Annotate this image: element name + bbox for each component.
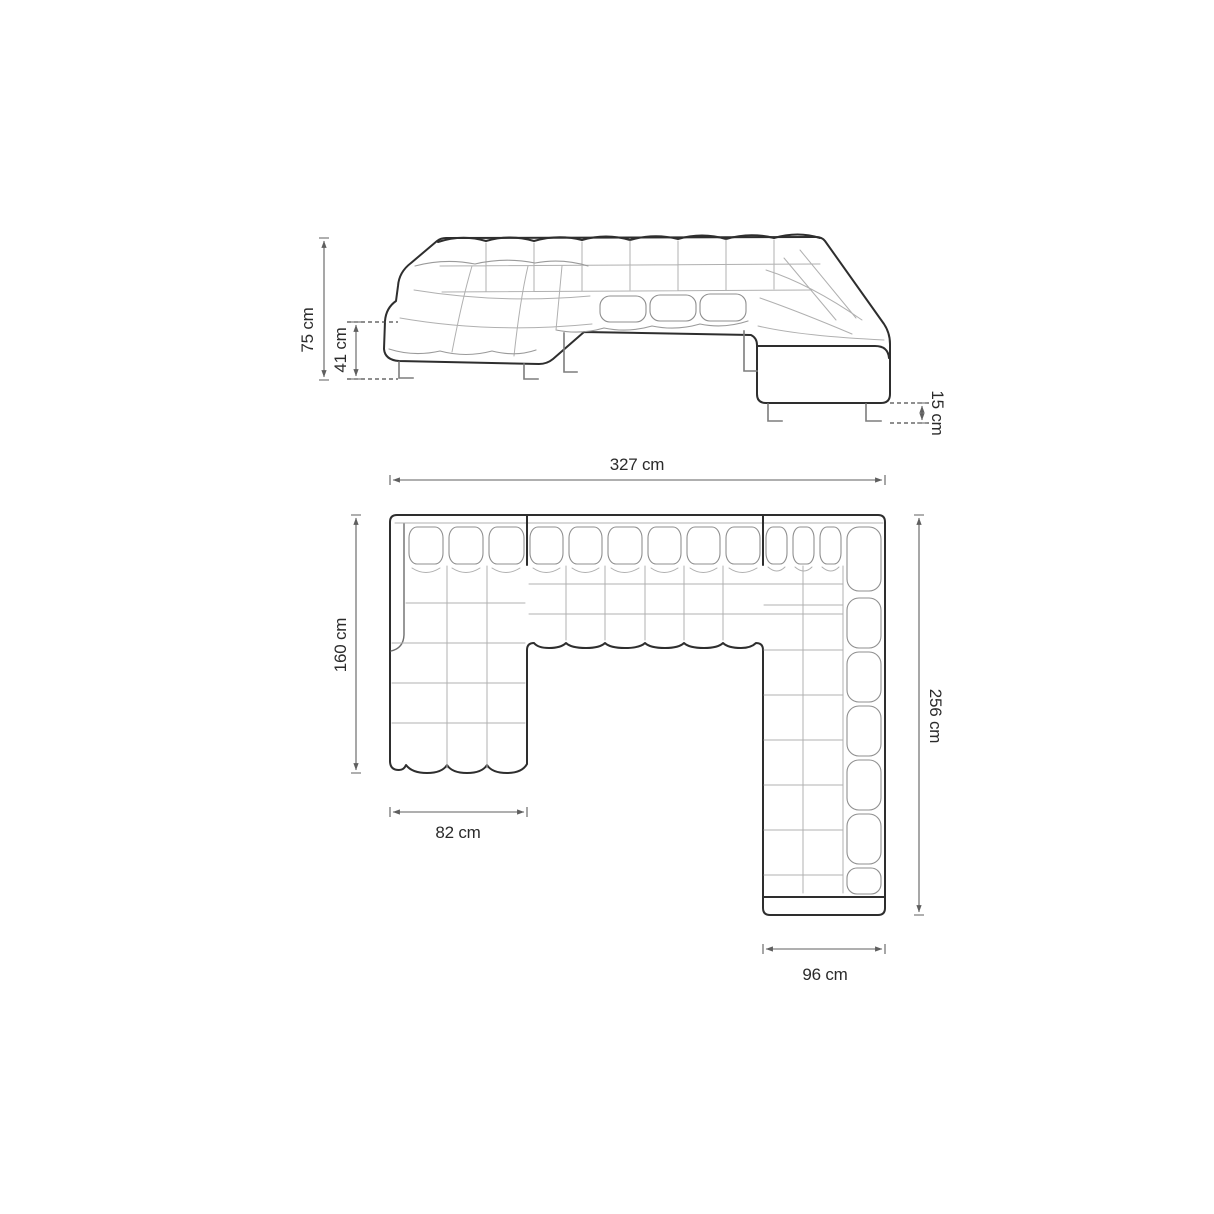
chaise-width-label: 82 cm xyxy=(435,823,480,842)
dimension-chaise-width: 82 cm xyxy=(390,807,527,842)
seat-height-label: 41 cm xyxy=(331,327,350,372)
elevation-view: 75 cm 41 cm 15 cm xyxy=(298,235,947,436)
right-section-length-label: 256 cm xyxy=(926,689,945,744)
dimension-right-section-length: 256 cm xyxy=(914,515,945,915)
sofa-dimension-diagram: 75 cm 41 cm 15 cm xyxy=(0,0,1214,1214)
plan-sofa-outline xyxy=(390,515,885,915)
dimension-chaise-length: 160 cm xyxy=(331,515,361,773)
total-width-label: 327 cm xyxy=(610,455,665,474)
plan-right-arm-cushions xyxy=(847,527,881,894)
dimension-leg-height: 15 cm xyxy=(917,390,947,435)
sofa-technical-drawing-page: 75 cm 41 cm 15 cm xyxy=(0,0,1214,1214)
plan-back-pillows xyxy=(409,527,841,564)
total-height-label: 75 cm xyxy=(298,307,317,352)
dimension-total-height: 75 cm xyxy=(298,238,329,380)
dimension-right-section-width: 96 cm xyxy=(763,944,885,984)
dimension-total-width: 327 cm xyxy=(390,455,885,485)
plan-view: 327 cm 160 cm 82 cm 256 cm 96 cm xyxy=(331,455,945,984)
right-section-width-label: 96 cm xyxy=(802,965,847,984)
dimension-seat-height: 41 cm xyxy=(331,322,361,379)
chaise-length-label: 160 cm xyxy=(331,618,350,673)
elevation-seat-cushions xyxy=(600,294,746,322)
leg-height-label: 15 cm xyxy=(928,390,947,435)
